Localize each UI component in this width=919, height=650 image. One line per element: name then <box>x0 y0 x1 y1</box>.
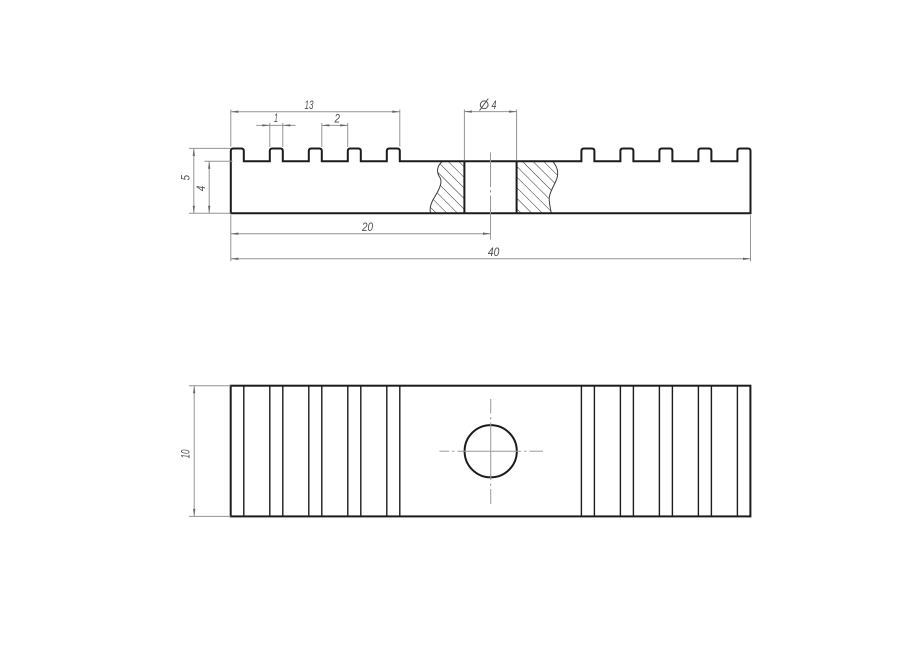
svg-text:20: 20 <box>361 222 373 234</box>
svg-text:1: 1 <box>274 113 278 125</box>
svg-text:10: 10 <box>181 449 193 458</box>
svg-text:4: 4 <box>196 186 208 192</box>
svg-text:13: 13 <box>305 100 314 112</box>
svg-text:40: 40 <box>488 247 500 259</box>
svg-text:2: 2 <box>334 114 341 126</box>
svg-text:4: 4 <box>492 100 497 112</box>
svg-text:5: 5 <box>180 174 192 180</box>
